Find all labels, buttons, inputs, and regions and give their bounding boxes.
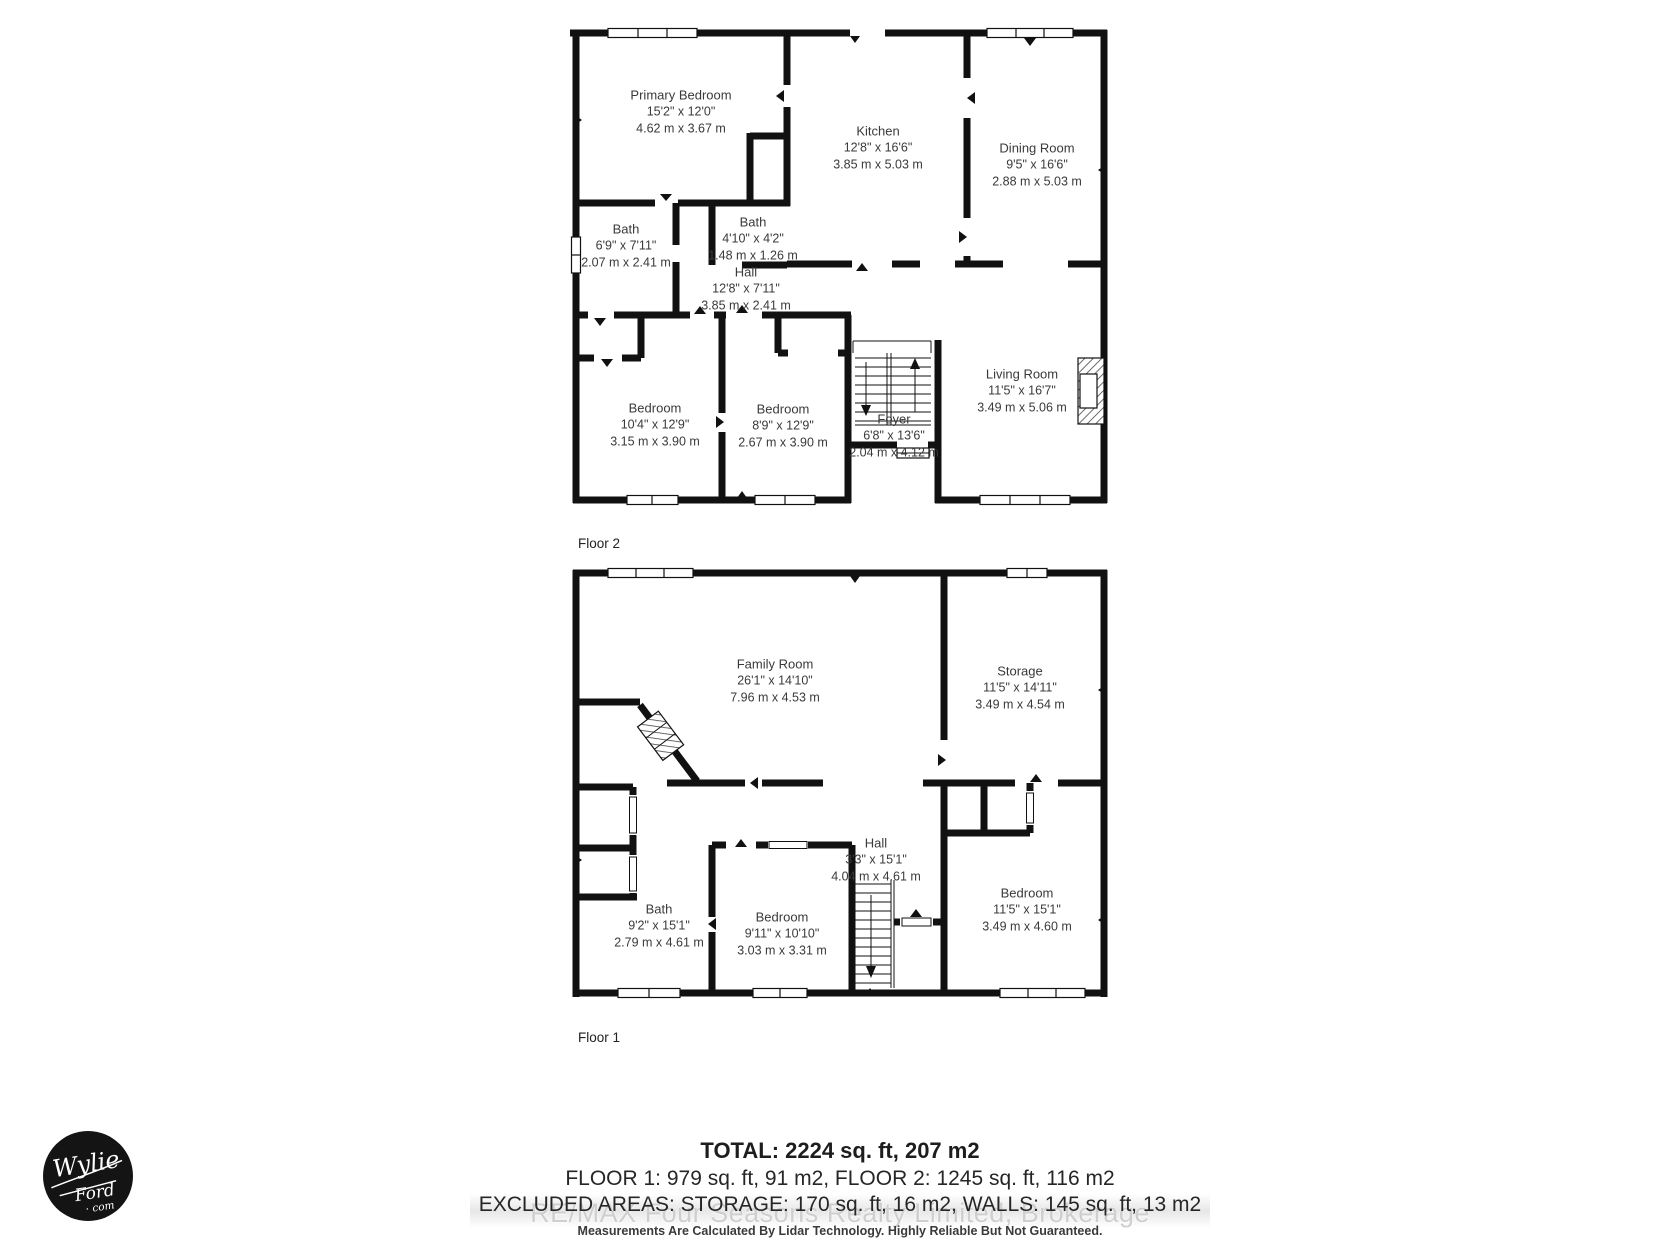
room-name: Storage xyxy=(975,663,1065,680)
room-dim-imperial: 11'5" x 16'7" xyxy=(977,383,1067,400)
room-dim-metric: 2.07 m x 2.41 m xyxy=(581,255,671,272)
room-label-dining-room: Dining Room 9'5" x 16'6" 2.88 m x 5.03 m xyxy=(992,140,1082,191)
room-name: Bath xyxy=(708,214,798,231)
room-dim-metric: 3.49 m x 4.54 m xyxy=(975,697,1065,714)
floorplan-page: Wylie Ford · com Floor 2 Primary Bedroom… xyxy=(0,0,1680,1260)
total-area-line: TOTAL: 2224 sq. ft, 207 m2 xyxy=(0,1136,1680,1166)
room-dim-imperial: 9'2" x 15'1" xyxy=(614,918,704,935)
room-name: Bedroom xyxy=(737,909,827,926)
room-dim-metric: 3.85 m x 5.03 m xyxy=(833,157,923,174)
room-dim-metric: 1.48 m x 1.26 m xyxy=(708,248,798,265)
room-dim-metric: 3.03 m x 3.31 m xyxy=(737,943,827,960)
room-label-storage: Storage 11'5" x 14'11" 3.49 m x 4.54 m xyxy=(975,663,1065,714)
room-name: Kitchen xyxy=(833,123,923,140)
room-dim-metric: 2.88 m x 5.03 m xyxy=(992,174,1082,191)
room-dim-imperial: 8'9" x 12'9" xyxy=(738,418,828,435)
room-label-hall-floor1: Hall 3'3" x 15'1" 4.04 m x 4.61 m xyxy=(831,835,921,886)
room-label-bedroom-middle-f2: Bedroom 8'9" x 12'9" 2.67 m x 3.90 m xyxy=(738,401,828,452)
room-name: Primary Bedroom xyxy=(630,87,731,104)
excluded-areas-line: EXCLUDED AREAS: STORAGE: 170 sq. ft, 16 … xyxy=(0,1192,1680,1218)
room-dim-metric: 4.04 m x 4.61 m xyxy=(831,869,921,886)
room-name: Bath xyxy=(614,901,704,918)
room-dim-imperial: 3'3" x 15'1" xyxy=(831,852,921,869)
room-dim-metric: 7.96 m x 4.53 m xyxy=(730,690,820,707)
room-label-hall-floor2: Hall 12'8" x 7'11" 3.85 m x 2.41 m xyxy=(701,264,791,315)
room-dim-imperial: 6'8" x 13'6" xyxy=(849,428,939,445)
room-label-family-room: Family Room 26'1" x 14'10" 7.96 m x 4.53… xyxy=(730,656,820,707)
room-label-bath-small: Bath 4'10" x 4'2" 1.48 m x 1.26 m xyxy=(708,214,798,265)
room-label-living-room: Living Room 11'5" x 16'7" 3.49 m x 5.06 … xyxy=(977,366,1067,417)
room-dim-imperial: 12'8" x 16'6" xyxy=(833,140,923,157)
room-label-bedroom-right: Bedroom 11'5" x 15'1" 3.49 m x 4.60 m xyxy=(982,885,1072,936)
room-label-bedroom-middle-f1: Bedroom 9'11" x 10'10" 3.03 m x 3.31 m xyxy=(737,909,827,960)
room-name: Bedroom xyxy=(610,400,700,417)
floor-areas-line: FLOOR 1: 979 sq. ft, 91 m2, FLOOR 2: 124… xyxy=(0,1166,1680,1192)
room-label-kitchen: Kitchen 12'8" x 16'6" 3.85 m x 5.03 m xyxy=(833,123,923,174)
room-name: Bedroom xyxy=(738,401,828,418)
room-label-bath-main: Bath 6'9" x 7'11" 2.07 m x 2.41 m xyxy=(581,221,671,272)
room-label-primary-bedroom: Primary Bedroom 15'2" x 12'0" 4.62 m x 3… xyxy=(630,87,731,138)
floor1-stairs xyxy=(855,880,894,988)
room-dim-imperial: 4'10" x 4'2" xyxy=(708,231,798,248)
room-label-bedroom-left: Bedroom 10'4" x 12'9" 3.15 m x 3.90 m xyxy=(610,400,700,451)
room-dim-metric: 3.49 m x 5.06 m xyxy=(977,400,1067,417)
room-dim-imperial: 6'9" x 7'11" xyxy=(581,238,671,255)
room-dim-metric: 2.67 m x 3.90 m xyxy=(738,435,828,452)
room-dim-imperial: 11'5" x 15'1" xyxy=(982,902,1072,919)
room-dim-imperial: 15'2" x 12'0" xyxy=(630,104,731,121)
room-dim-metric: 3.85 m x 2.41 m xyxy=(701,298,791,315)
room-dim-metric: 2.79 m x 4.61 m xyxy=(614,935,704,952)
room-label-foyer: Foyer 6'8" x 13'6" 2.04 m x 4.12 m xyxy=(849,411,939,462)
room-label-bath-floor1: Bath 9'2" x 15'1" 2.79 m x 4.61 m xyxy=(614,901,704,952)
floorplan-drawing: Wylie Ford · com xyxy=(0,0,1680,1260)
floor2-tag: Floor 2 xyxy=(578,536,620,551)
room-name: Dining Room xyxy=(992,140,1082,157)
room-dim-imperial: 26'1" x 14'10" xyxy=(730,673,820,690)
room-name: Foyer xyxy=(849,411,939,428)
room-dim-imperial: 11'5" x 14'11" xyxy=(975,680,1065,697)
room-dim-metric: 3.15 m x 3.90 m xyxy=(610,434,700,451)
room-name: Hall xyxy=(701,264,791,281)
room-dim-metric: 2.04 m x 4.12 m xyxy=(849,445,939,462)
summary-block: TOTAL: 2224 sq. ft, 207 m2 FLOOR 1: 979 … xyxy=(0,1136,1680,1218)
room-name: Bath xyxy=(581,221,671,238)
floor1-tag: Floor 1 xyxy=(578,1030,620,1045)
room-dim-metric: 4.62 m x 3.67 m xyxy=(630,121,731,138)
room-dim-imperial: 9'5" x 16'6" xyxy=(992,157,1082,174)
measurement-disclaimer: Measurements Are Calculated By Lidar Tec… xyxy=(0,1224,1680,1238)
room-name: Living Room xyxy=(977,366,1067,383)
room-name: Bedroom xyxy=(982,885,1072,902)
room-name: Family Room xyxy=(730,656,820,673)
fireplace xyxy=(1078,358,1104,424)
room-dim-imperial: 12'8" x 7'11" xyxy=(701,281,791,298)
room-dim-metric: 3.49 m x 4.60 m xyxy=(982,919,1072,936)
room-dim-imperial: 9'11" x 10'10" xyxy=(737,926,827,943)
room-dim-imperial: 10'4" x 12'9" xyxy=(610,417,700,434)
room-name: Hall xyxy=(831,835,921,852)
